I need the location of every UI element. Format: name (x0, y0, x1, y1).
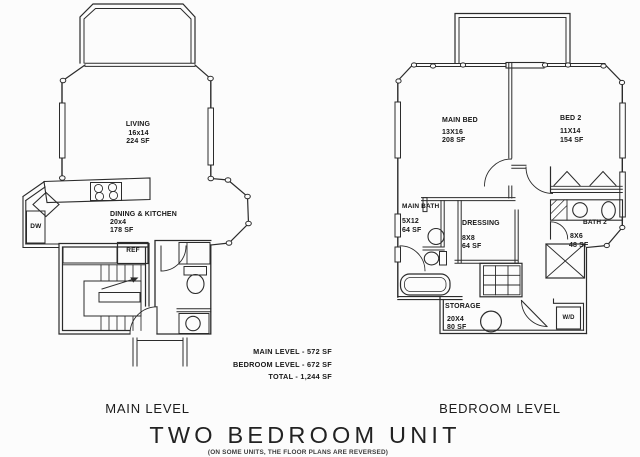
floorplan-page: LIVING 16x14 224 SF DINING & KITCHEN 20x… (0, 0, 640, 457)
stair-handrail (99, 293, 140, 303)
bed2-name: BED 2 (560, 115, 581, 122)
living-window-left (60, 103, 66, 158)
reversed-plans-note: (ON SOME UNITS, THE FLOOR PLANS ARE REVE… (208, 450, 388, 456)
bath2-area: 48 SF (569, 242, 588, 249)
upper-deck-outline (455, 14, 570, 64)
main-bed-door-arc (485, 159, 512, 186)
bath2-door-arc (551, 222, 568, 239)
main-level-plan (23, 4, 251, 366)
main-bed-area: 208 SF (442, 137, 465, 144)
dressing-area: 64 SF (462, 243, 481, 250)
dressing-dims: 8X8 (462, 235, 475, 242)
main-bed-window (395, 102, 401, 158)
refrigerator-label: REF (126, 248, 139, 255)
main-bath-window-1 (395, 214, 401, 237)
kitchen-counter (44, 178, 150, 203)
toilet-bowl (187, 275, 204, 294)
bed2-door-arc (526, 167, 553, 194)
bedroom-divider-wall (509, 63, 512, 198)
living-room-name: LIVING (126, 121, 150, 128)
main-bath-window-2 (395, 247, 401, 262)
toilet-tank (184, 267, 207, 276)
living-window-right (208, 108, 214, 165)
bed2-window-1 (620, 103, 626, 158)
main-bath-door-arc (400, 246, 425, 271)
main-bath-dims: 5X12 (402, 218, 419, 225)
entry-stoop (133, 338, 187, 366)
main-level-caption: MAIN LEVEL (105, 402, 190, 415)
main-bath-name: MAIN BATH (402, 204, 439, 211)
living-top-wall (85, 63, 195, 66)
powder-closet (179, 243, 210, 265)
upper-stairs (480, 263, 522, 297)
summary-total: TOTAL - 1,244 SF (180, 371, 332, 384)
powder-door-arc (161, 246, 186, 271)
living-room-dims: 16x14 (128, 130, 148, 137)
main-bath-area: 64 SF (402, 227, 421, 234)
dining-kitchen-name: DINING & KITCHEN (110, 211, 177, 218)
bedroom-level-caption: BEDROOM LEVEL (439, 402, 561, 415)
deck-outline (80, 4, 195, 63)
water-heater (481, 311, 502, 332)
dining-bay-wall (211, 179, 249, 246)
main-bed-dims: 13X16 (442, 129, 463, 136)
floorplan-linework (0, 0, 640, 457)
dishwasher-label: DW (30, 224, 41, 231)
dressing-name: DRESSING (462, 220, 500, 227)
bed2-dims: 11X14 (560, 128, 581, 135)
dining-kitchen-dims: 20x4 (110, 219, 126, 226)
summary-bedroom-level: BEDROOM LEVEL - 672 SF (180, 359, 332, 372)
bedroom-level-plan (395, 14, 625, 334)
main-bed-name: MAIN BED (442, 117, 478, 124)
main-bath-sink (428, 229, 444, 245)
summary-main-level: MAIN LEVEL - 572 SF (180, 346, 332, 359)
storage-name: STORAGE (445, 303, 481, 310)
powder-sink (186, 316, 200, 330)
dressing-walls (455, 201, 518, 264)
dining-kitchen-area: 178 SF (110, 227, 133, 234)
bath2-name: BATH 2 (583, 220, 607, 227)
kitchen-counter-2 (63, 247, 117, 263)
area-summary: MAIN LEVEL - 572 SF BEDROOM LEVEL - 672 … (180, 346, 332, 384)
living-side-walls (62, 78, 211, 179)
page-title: TWO BEDROOM UNIT (149, 424, 460, 448)
bed2-area: 154 SF (560, 137, 583, 144)
powder-room-walls (155, 241, 211, 335)
storage-dims: 20X4 (447, 316, 464, 323)
bath2-sink (573, 203, 588, 218)
closet-bifold-doors (554, 172, 616, 186)
bath2-toilet (602, 202, 616, 220)
living-room-area: 224 SF (126, 138, 149, 145)
washer-dryer-label: W/D (562, 315, 574, 321)
main-bath-toilet (424, 252, 438, 265)
storage-area: 80 SF (447, 324, 466, 331)
bath2-dims: 8X6 (570, 233, 583, 240)
